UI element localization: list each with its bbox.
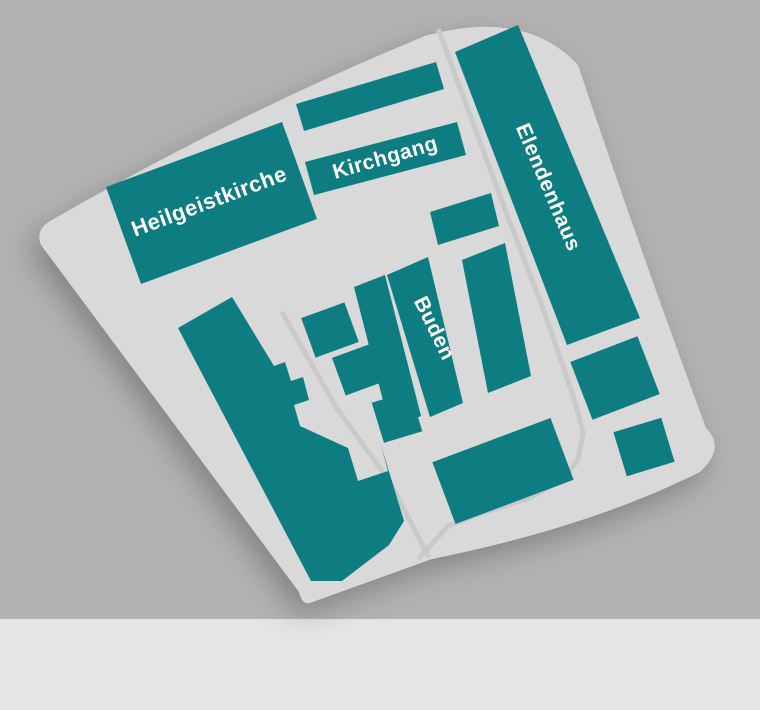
footer-strip: [0, 619, 760, 710]
site-map: HeilgeistkircheKirchgangElendenhausBuden: [0, 0, 760, 710]
site-plan-stage: HeilgeistkircheKirchgangElendenhausBuden: [0, 0, 760, 710]
